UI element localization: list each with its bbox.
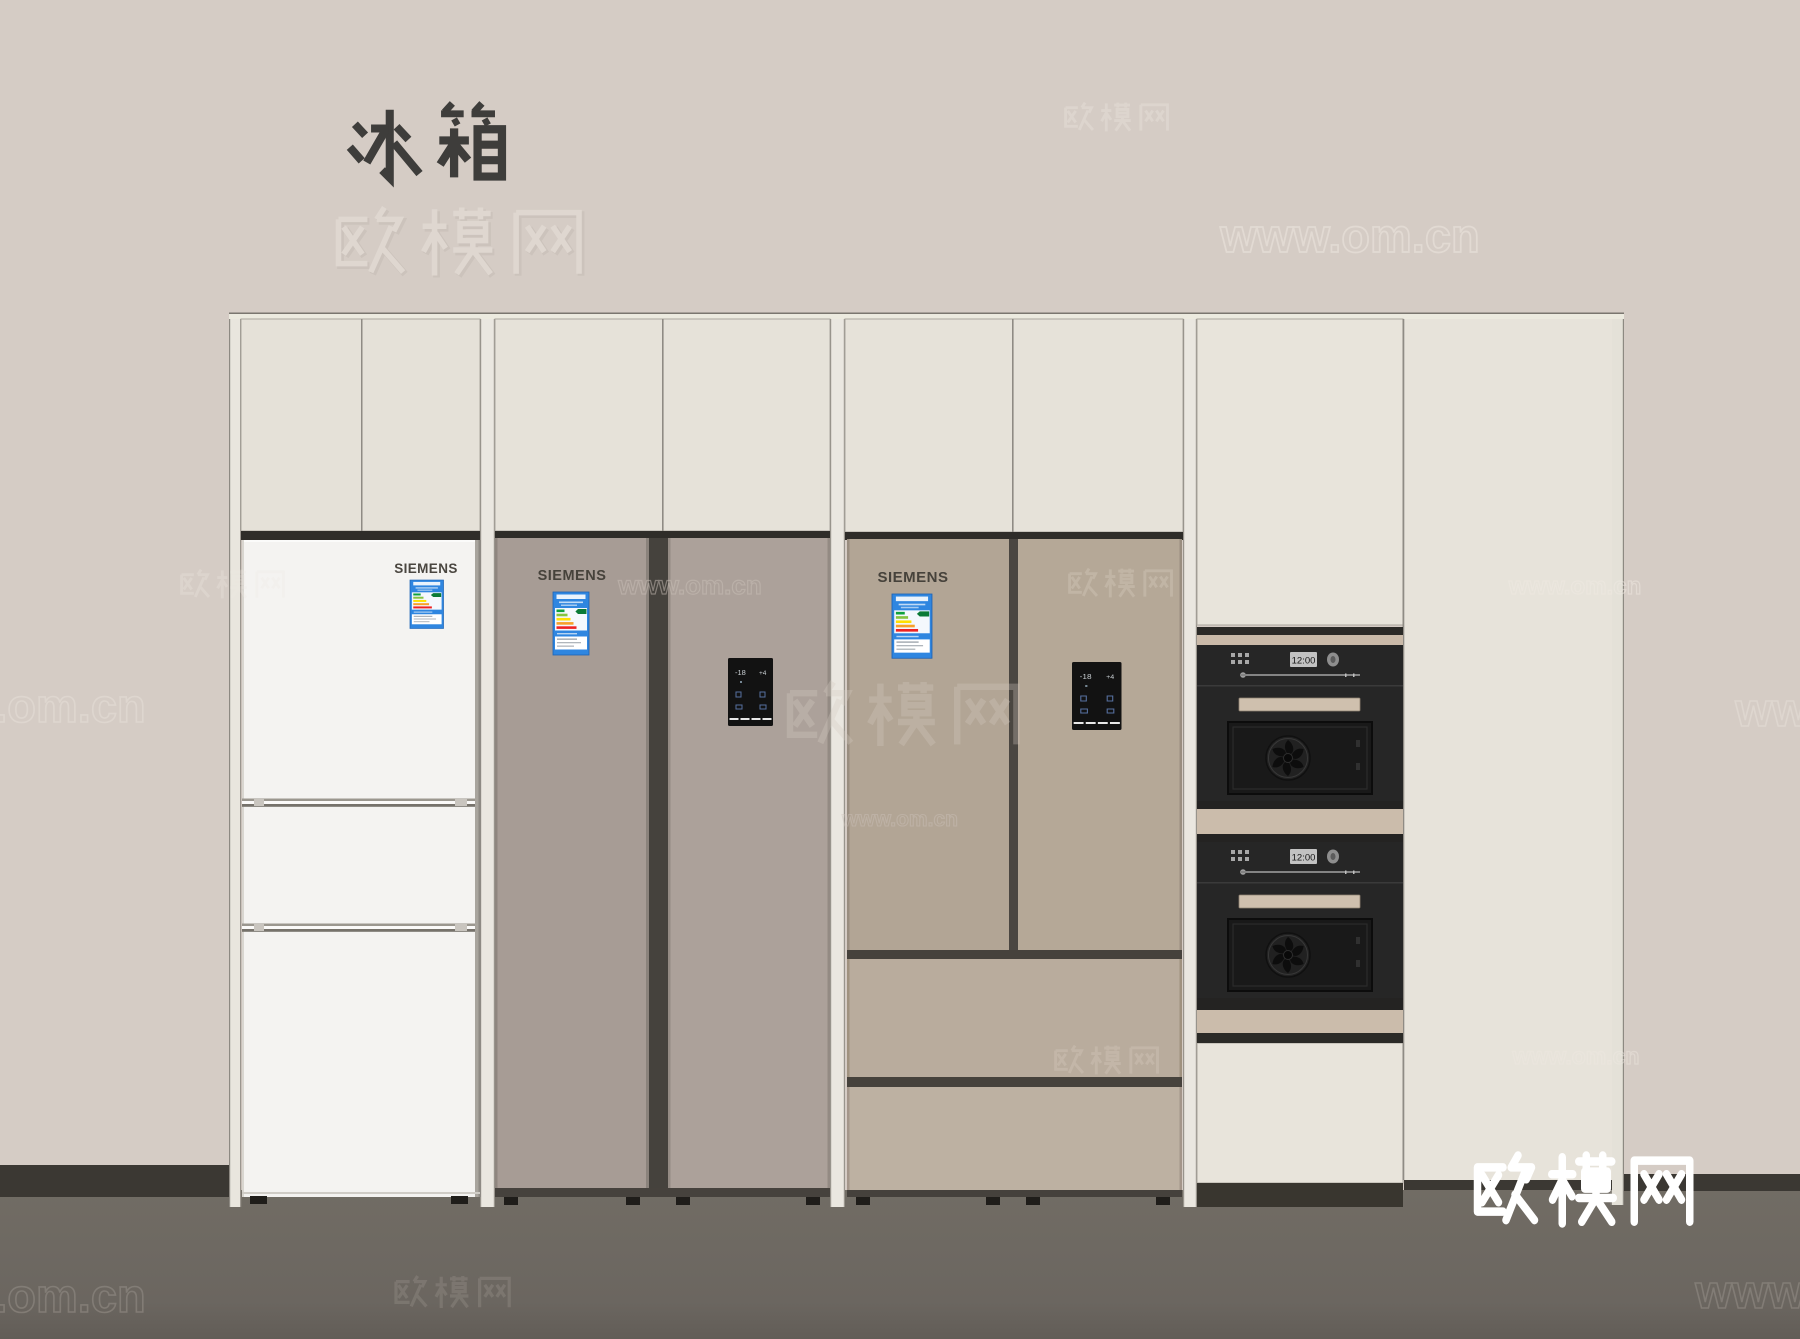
svg-text:www.om.cn: www.om.cn xyxy=(617,570,762,600)
svg-text:www.om.cn: www.om.cn xyxy=(0,1269,146,1322)
svg-text:www.om.cn: www.om.cn xyxy=(1512,1043,1640,1069)
svg-text:www.om.cn: www.om.cn xyxy=(1508,573,1641,600)
svg-text:SIEMENS: SIEMENS xyxy=(394,561,458,576)
svg-text:www.om.cn: www.om.cn xyxy=(1694,1265,1800,1318)
svg-text:SIEMENS: SIEMENS xyxy=(877,569,948,586)
svg-text:www.om.cn: www.om.cn xyxy=(841,808,958,831)
svg-text:www.om.cn: www.om.cn xyxy=(0,679,146,732)
svg-text:www.om.cn: www.om.cn xyxy=(1734,683,1800,736)
svg-text:www.om.cn: www.om.cn xyxy=(1219,209,1479,262)
svg-text:SIEMENS: SIEMENS xyxy=(538,568,607,584)
